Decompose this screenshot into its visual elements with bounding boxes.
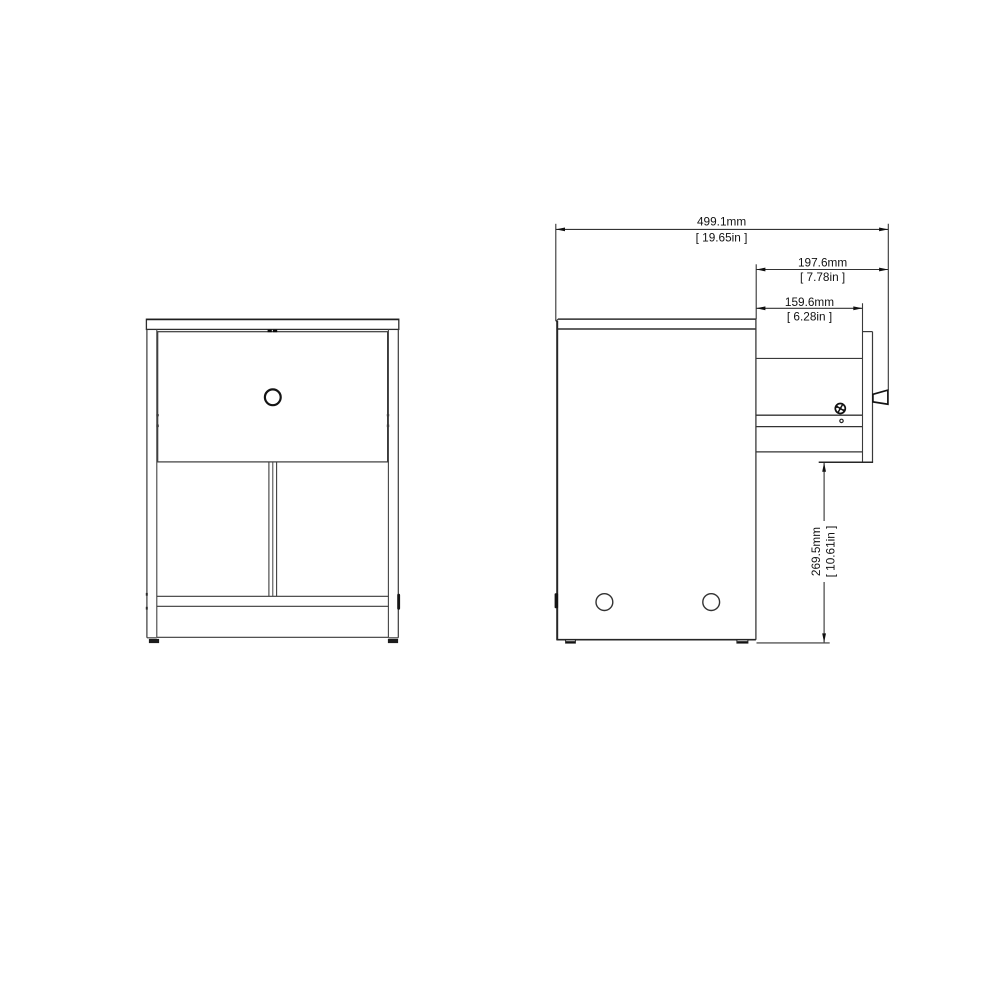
svg-text:269.5mm: 269.5mm — [809, 527, 823, 576]
svg-text:499.1mm: 499.1mm — [697, 215, 746, 229]
svg-text:197.6mm: 197.6mm — [798, 256, 847, 270]
svg-text:159.6mm: 159.6mm — [785, 295, 834, 309]
svg-text:[ 19.65in ]: [ 19.65in ] — [696, 230, 748, 244]
svg-text:[ 6.28in ]: [ 6.28in ] — [787, 310, 832, 324]
svg-text:[ 10.61in ]: [ 10.61in ] — [824, 526, 838, 578]
svg-text:[ 7.78in ]: [ 7.78in ] — [800, 270, 845, 284]
